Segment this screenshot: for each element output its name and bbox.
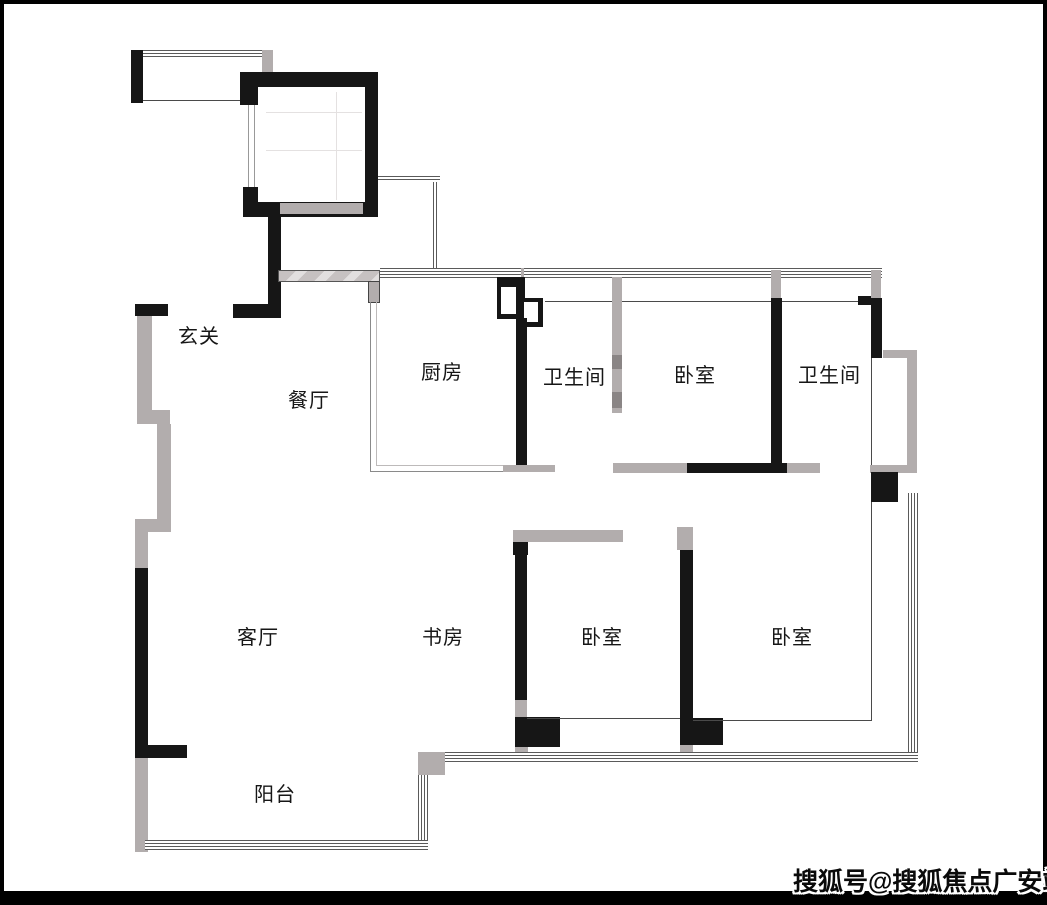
wall-black bbox=[268, 217, 281, 308]
window-band bbox=[428, 752, 918, 762]
room-label-study: 书房 bbox=[422, 628, 464, 648]
wall-black bbox=[148, 745, 187, 758]
window-band bbox=[378, 176, 440, 182]
room-label-dining: 餐厅 bbox=[288, 391, 330, 411]
hatched-wall bbox=[278, 270, 380, 282]
wall-black bbox=[871, 298, 882, 358]
room-outline bbox=[527, 718, 680, 719]
wall-black bbox=[243, 72, 378, 87]
wall-gray bbox=[137, 410, 170, 424]
stair-line bbox=[336, 92, 337, 200]
room-label-bed-3: 卧室 bbox=[771, 628, 813, 648]
wall-black bbox=[233, 304, 281, 318]
stair-line bbox=[266, 112, 362, 113]
wall-black bbox=[513, 542, 528, 555]
wall-gray bbox=[503, 465, 555, 472]
wall-gray bbox=[907, 350, 917, 473]
floor-plan: 玄关 餐厅 厨房 卫生间 卧室 卫生间 客厅 书房 卧室 卧室 阳台 搜狐号@搜… bbox=[0, 0, 1047, 905]
wall-black bbox=[680, 550, 693, 745]
wall-black bbox=[135, 568, 148, 758]
window-band bbox=[908, 493, 918, 752]
niche-line bbox=[871, 358, 872, 465]
wall-black bbox=[516, 318, 527, 465]
wall-gray bbox=[368, 281, 380, 303]
wall-gray bbox=[677, 527, 693, 550]
elevator-door-line bbox=[248, 105, 249, 187]
flue-shaft-inner bbox=[501, 287, 516, 314]
wall-gray bbox=[771, 270, 781, 298]
wall-gray bbox=[135, 519, 171, 532]
wall-black bbox=[858, 296, 871, 305]
wall-black bbox=[771, 298, 782, 465]
wall-gray bbox=[157, 424, 171, 522]
wall-black bbox=[515, 717, 560, 747]
wall-gray bbox=[513, 530, 623, 542]
room-label-bed-2: 卧室 bbox=[581, 628, 623, 648]
room-label-bed-1: 卧室 bbox=[674, 366, 716, 386]
window-band bbox=[143, 50, 262, 59]
wall-black bbox=[693, 718, 723, 745]
wall-black bbox=[131, 50, 143, 103]
room-label-kitchen: 厨房 bbox=[421, 363, 463, 383]
watermark-text: 搜狐号@搜狐焦点广安站 bbox=[793, 862, 1047, 898]
wall-black bbox=[515, 555, 527, 700]
wall-gray bbox=[135, 532, 148, 568]
wall-black bbox=[687, 463, 787, 473]
wall-gray bbox=[787, 463, 820, 473]
room-label-entry: 玄关 bbox=[178, 327, 220, 347]
inner-wall-line bbox=[545, 301, 858, 302]
wall-black bbox=[871, 472, 898, 502]
stair-line bbox=[266, 150, 362, 151]
wall-gray bbox=[280, 203, 363, 214]
room-outline bbox=[693, 720, 872, 721]
wall-line bbox=[143, 100, 246, 101]
window-band bbox=[433, 182, 439, 270]
wall-black bbox=[365, 72, 378, 217]
window-band bbox=[418, 775, 428, 850]
wall-gray bbox=[515, 700, 527, 717]
window-band bbox=[145, 840, 428, 850]
wall-gray bbox=[135, 758, 148, 852]
kitchen-outline bbox=[376, 302, 503, 466]
wall-gray bbox=[871, 270, 881, 298]
room-label-living: 客厅 bbox=[237, 628, 279, 648]
wall-gray bbox=[262, 50, 273, 73]
wall-gray bbox=[613, 463, 687, 473]
room-label-balcony: 阳台 bbox=[254, 785, 296, 805]
elevator-door-line bbox=[254, 105, 255, 187]
wall-black bbox=[135, 304, 168, 316]
room-label-bath-1: 卫生间 bbox=[543, 368, 606, 388]
room-label-bath-2: 卫生间 bbox=[798, 366, 861, 386]
wall-gray-dark bbox=[612, 355, 622, 369]
room-outline bbox=[871, 502, 872, 721]
window-band bbox=[380, 268, 882, 278]
wall-gray-dark bbox=[612, 392, 622, 408]
wall-gray bbox=[137, 316, 152, 413]
wall-gray bbox=[418, 752, 445, 775]
